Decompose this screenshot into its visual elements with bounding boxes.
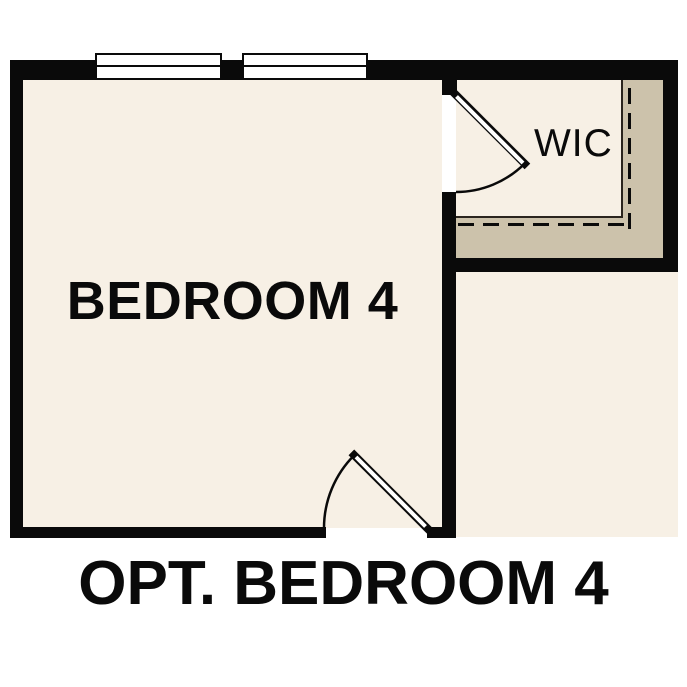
wall-right <box>663 60 678 272</box>
window-icon <box>95 53 222 80</box>
wic-closet-area <box>456 80 663 258</box>
window-icon <box>242 53 368 80</box>
room-label-bedroom4: BEDROOM 4 <box>23 270 442 332</box>
room-label-wic: WIC <box>534 122 613 166</box>
wall-wic-door-jamb <box>442 80 457 95</box>
wall-bottom <box>10 527 326 538</box>
wall-wic-bottom <box>442 258 678 272</box>
closet-rod-dashed-line-vertical <box>628 88 631 229</box>
wall-left <box>10 60 23 538</box>
window-mullion <box>244 65 366 67</box>
adjacent-hall-floor <box>456 272 678 537</box>
closet-rod-dashed-line-horizontal <box>458 223 630 226</box>
window-mullion <box>97 65 220 67</box>
plan-caption: OPT. BEDROOM 4 <box>0 548 687 619</box>
wall-bottom-door-jamb <box>427 527 456 538</box>
floor-plan: BEDROOM 4 WIC OPT. BEDROOM 4 <box>0 0 687 687</box>
wall-interior-vertical <box>442 192 456 538</box>
